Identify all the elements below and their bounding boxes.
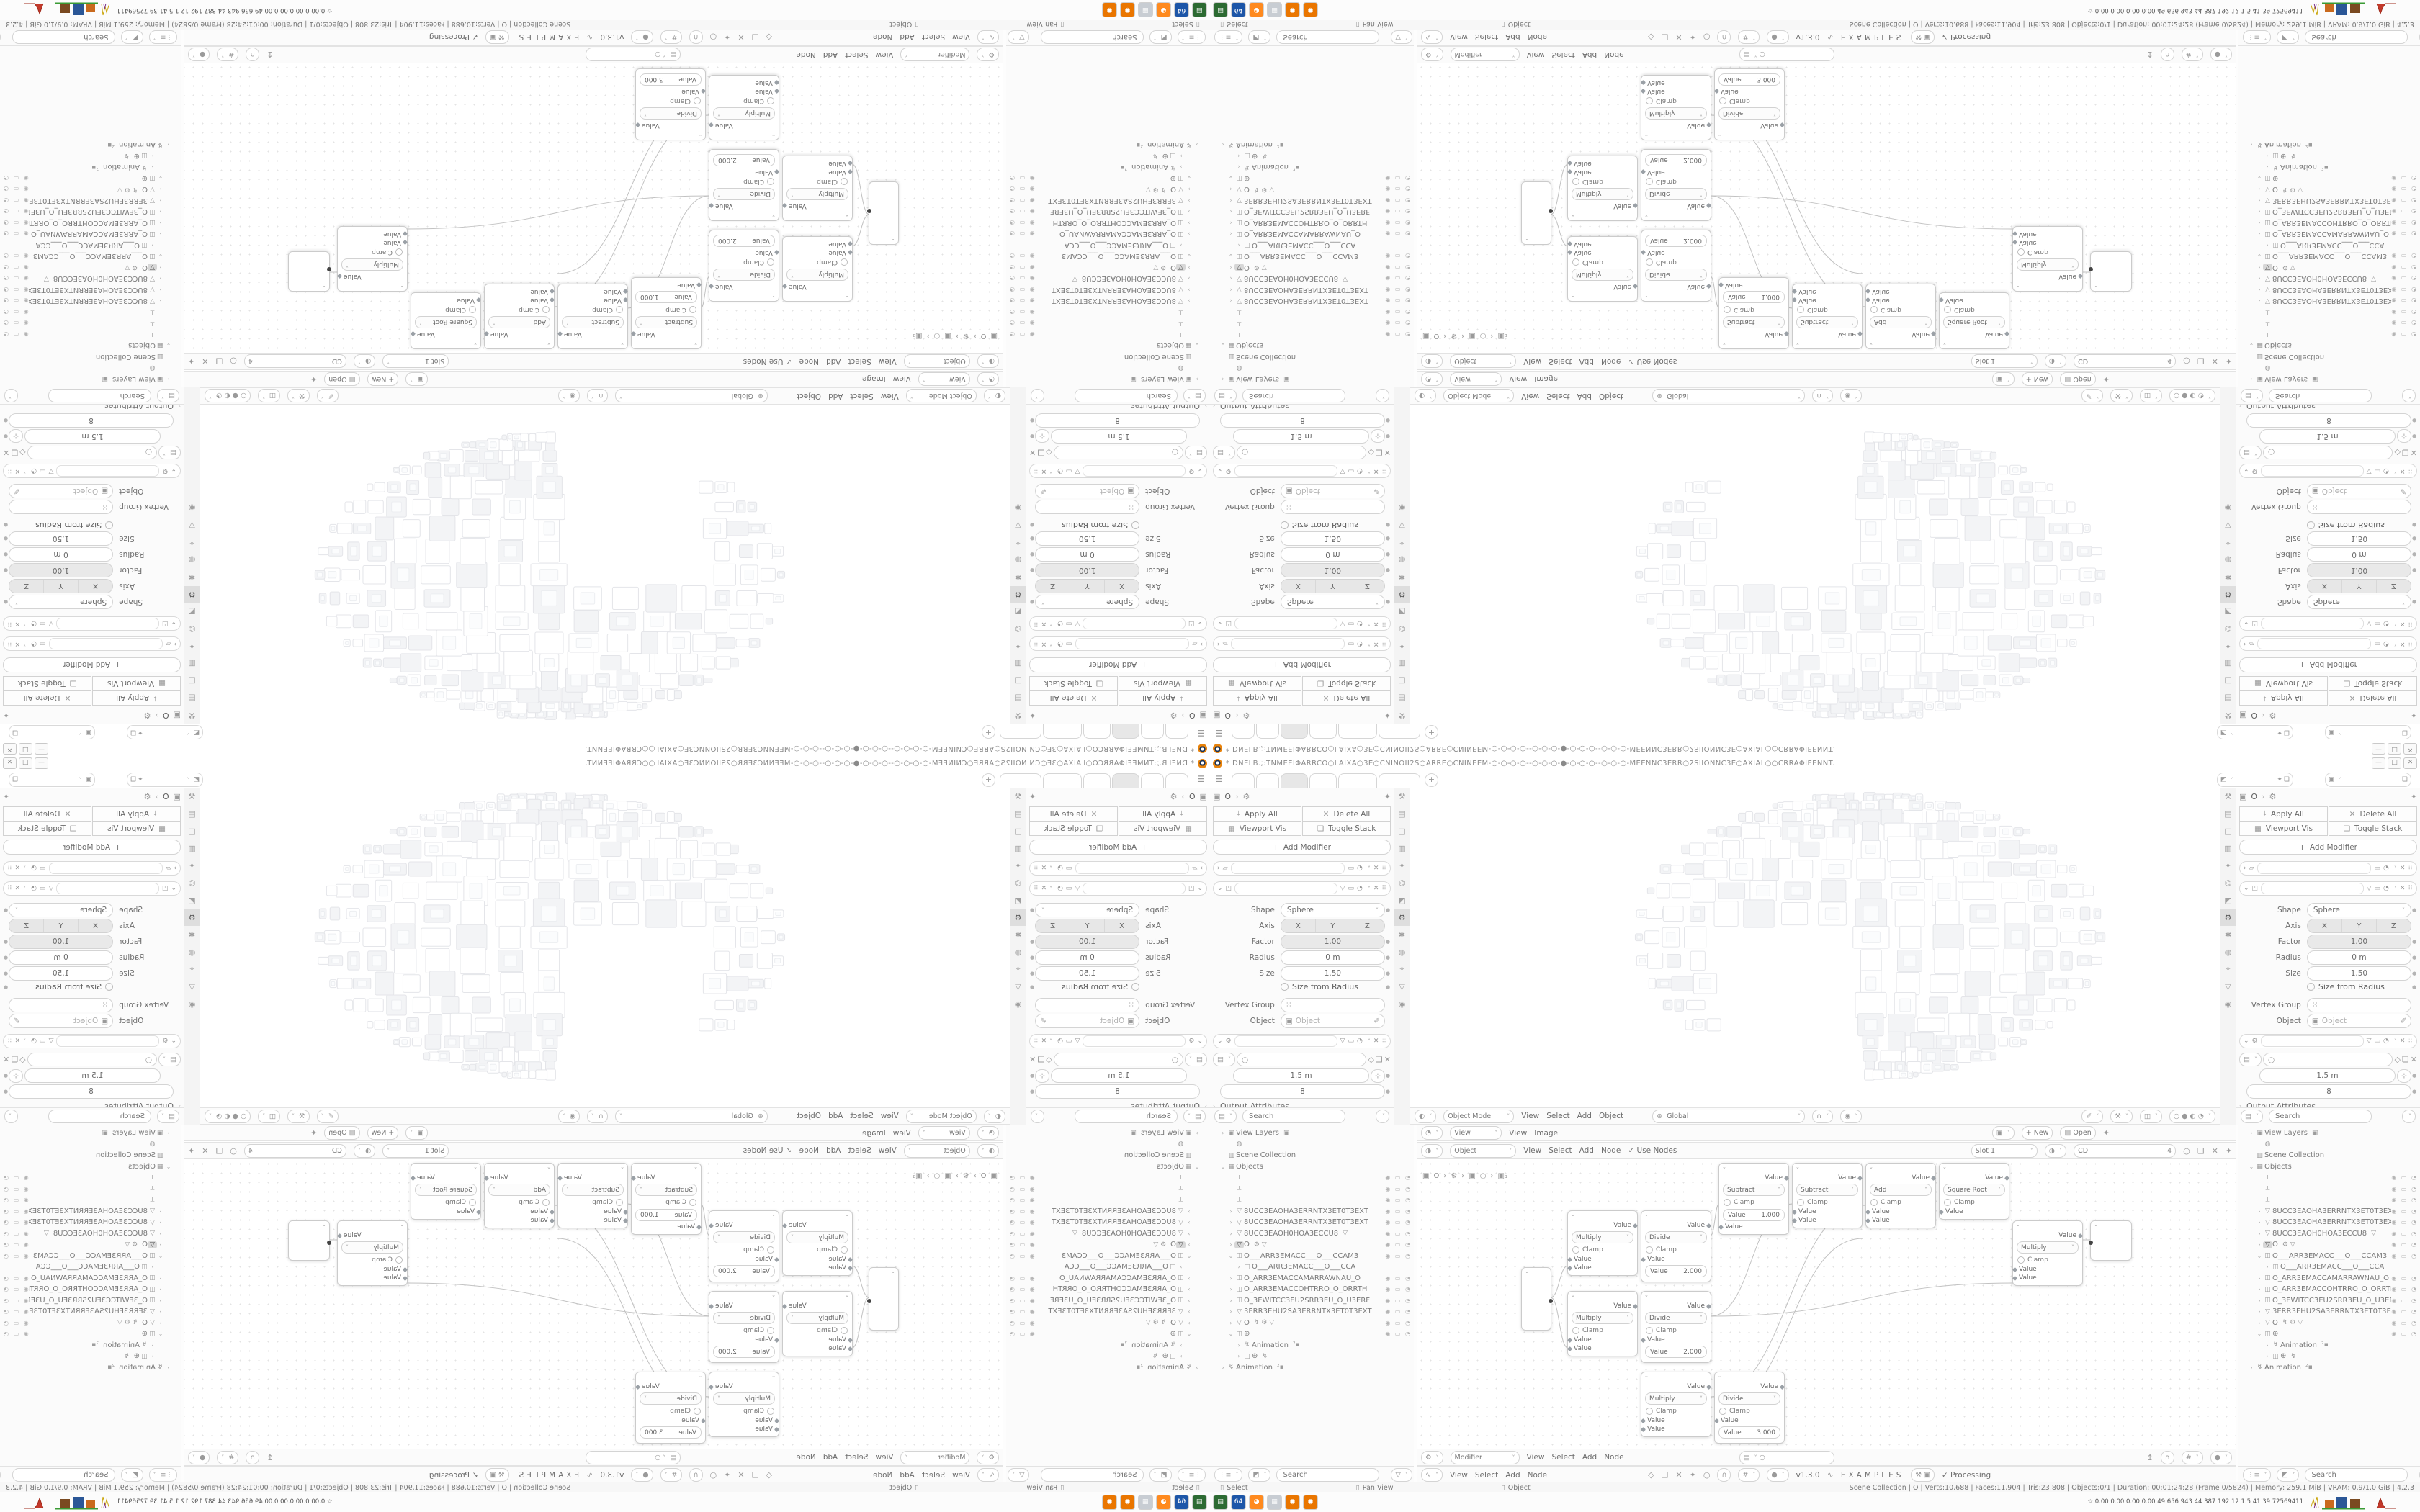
viewport-3d[interactable] — [1410, 788, 2220, 1125]
properties-tab-icon-1[interactable]: ▤ — [1394, 690, 1410, 707]
operation-select[interactable]: Square Root˅ — [415, 1184, 477, 1196]
filter-id-button[interactable]: ◩˅ — [121, 30, 143, 44]
pin-icon[interactable]: ✦ — [2411, 711, 2417, 721]
options-dropdown[interactable]: ˅ — [4, 389, 18, 402]
viewport-vis-button[interactable]: ▦Viewport Vis — [2239, 821, 2328, 836]
operation-select[interactable]: Divide˅ — [713, 188, 775, 200]
visibility-toggles[interactable]: ◉ ▭ ◔ — [1008, 320, 1035, 326]
outliner-row[interactable]: ›▽8UCC3EAOH0HOA3ECCU8▽◉ ▭ ◔ — [2240, 273, 2420, 284]
image-browse-button[interactable]: ▣˅ — [1992, 372, 2015, 386]
outliner-row[interactable]: ›◫O___ARR3EMACC___O___CCA — [0, 1261, 180, 1273]
workspace-tab-3[interactable] — [1112, 724, 1139, 739]
menu-add[interactable]: Add — [900, 1471, 914, 1480]
properties-tab-icon-9[interactable]: ◍ — [1394, 943, 1410, 960]
menu-view[interactable]: View — [881, 392, 899, 400]
outliner-row[interactable]: ⟂◉ ▭ ◔ — [1211, 329, 1414, 341]
close-button[interactable]: ✕ — [3, 743, 17, 755]
clamp-checkbox[interactable]: Clamp — [636, 96, 705, 106]
overlays-dropdown[interactable]: ●˅ — [2210, 1451, 2232, 1464]
grid-snap-select[interactable]: #˅ — [2182, 1451, 2203, 1464]
radius-field[interactable]: 0 m — [1035, 950, 1139, 965]
properties-tab-icon-12[interactable]: ◉ — [1010, 995, 1026, 1012]
view-layer-selector[interactable]: ▣˅ ❏ — [2325, 725, 2411, 739]
operation-select[interactable]: Subtract˅ — [562, 1184, 624, 1196]
gn-input-size-field[interactable]: 1.5 m — [24, 429, 161, 444]
snap-toggle[interactable]: ∩ — [689, 1468, 703, 1482]
workspace-tab-5[interactable] — [1338, 724, 1377, 739]
node-math-multiply[interactable]: ⌄ValueMultiply˅ClampValueValue — [1567, 156, 1638, 221]
editor-type-button[interactable]: ▤˅ — [2241, 1110, 2263, 1123]
minimize-button[interactable]: — — [35, 743, 48, 755]
workspace-tab-1[interactable] — [1232, 773, 1255, 788]
node-canvas[interactable]: ▣O› ⚙›▣○›▣₃ ⌄⌄ValueMultiply˅ClampValueVa… — [1417, 1159, 2236, 1449]
menu-select[interactable]: Select — [922, 33, 945, 42]
visibility-toggles[interactable]: ◉ ▭ ◔ — [2391, 1275, 2418, 1282]
properties-tab-icon-11[interactable]: ▽ — [2220, 517, 2236, 534]
factor-slider[interactable]: 1.00 — [1035, 563, 1139, 577]
outliner-row[interactable]: ›▽8UCC3EAOHA3ERRNTX3ET0T3EXT◉ ▭ ◔ — [0, 1206, 180, 1218]
text-editor-icon[interactable]: 64 — [1231, 3, 1246, 18]
outliner-row[interactable]: ›▽8UCC3EAOH0HOA3ECCU8▽◉ ▭ ◔ — [0, 273, 180, 284]
new-image-button[interactable]: + New — [367, 372, 399, 386]
outliner-row[interactable]: ⟂◉ ▭ ◔ — [1006, 307, 1209, 318]
menu-view[interactable]: View — [893, 375, 911, 384]
visibility-toggles[interactable]: ◉ ▭ ◔ — [2, 230, 29, 237]
clamp-checkbox[interactable]: Clamp — [2013, 1255, 2082, 1265]
properties-tab-icon-4[interactable]: ✦ — [2220, 638, 2236, 655]
properties-tab-icon-4[interactable]: ✦ — [2220, 857, 2236, 874]
visibility-toggles[interactable]: ◉ ▭ ◔ — [2391, 186, 2418, 192]
radius-field[interactable]: 0 m — [9, 950, 113, 965]
voxel-sphere-object[interactable] — [302, 430, 799, 721]
visibility-toggles[interactable]: ◉ ▭ ◔ — [2391, 1186, 2418, 1192]
node-math-divide[interactable]: ⌄ValueDivide˅ClampValueValue3.000 — [1714, 68, 1785, 140]
gn-input-extra-button[interactable]: ⊹ — [9, 1069, 23, 1083]
visibility-toggles[interactable]: ◉ ▭ ◔ — [1385, 309, 1412, 315]
outliner-row[interactable]: ›▽O↯ ⚙ ▽◉ ▭ ◔ — [0, 184, 180, 195]
node-math-multiply[interactable]: ⌄ValueMultiply˅ClampValueValue — [337, 1220, 408, 1286]
workspace-tab-6[interactable] — [1000, 773, 1041, 788]
search-input[interactable] — [1276, 30, 1379, 44]
visibility-toggles[interactable]: ◉ ▭ ◔ — [1008, 1230, 1035, 1237]
filter-id-button[interactable]: ◩˅ — [1248, 1468, 1270, 1482]
node-math-divide[interactable]: ⌄ValueDivide˅ClampValueValue2.000 — [1641, 149, 1711, 221]
pin-icon[interactable]: ✦ — [3, 711, 9, 721]
clamp-checkbox[interactable]: Clamp — [338, 1255, 407, 1265]
axis-y-button[interactable]: Y — [43, 919, 78, 932]
close-icon[interactable]: ✕ — [1675, 1470, 1682, 1480]
visibility-toggles[interactable]: ◉ ▭ ◔ — [1385, 1230, 1412, 1237]
clamp-checkbox[interactable]: Clamp — [783, 1245, 852, 1255]
outliner-row[interactable]: ▥Scene Collection — [0, 1150, 180, 1161]
image-browse-button[interactable]: ▣˅ — [405, 1126, 428, 1140]
node-group-name-field[interactable]: ○ — [1054, 446, 1183, 459]
modifier-header-cast[interactable]: ⌄◳ ▽▭◔˅✕⠿ — [3, 881, 181, 896]
outliner-row[interactable]: ›▽8UCC3EAOHA3ERRNTX3ET0T3EXT◉ ▭ ◔ — [1006, 1206, 1209, 1218]
menu-add[interactable]: Add — [826, 1146, 841, 1155]
copy-icon[interactable]: ❏ — [130, 776, 136, 783]
outliner-row[interactable]: ›▽3ERR3EHU2SA3ERRNTX3ET0T3EXT◉ ▭ ◔ — [0, 195, 180, 207]
shape-select[interactable]: Sphere˅ — [1281, 595, 1385, 609]
visibility-toggles[interactable]: ◉ ▭ ◔ — [2, 309, 29, 315]
properties-tab-icon-10[interactable]: ⌖ — [1010, 534, 1026, 552]
outliner-row[interactable]: ⌄◫O___ARR3EMACC___O___CCAM3◉ ▭ ◔ — [1006, 1251, 1209, 1262]
outliner-row[interactable]: ›◫O___ARR3EMACC___O___CCA — [2240, 240, 2420, 251]
clamp-checkbox[interactable]: Clamp — [1715, 96, 1784, 106]
axis-x-button[interactable]: X — [2308, 919, 2342, 932]
node-group-field[interactable]: ▤˅○ — [586, 48, 681, 62]
open-image-button[interactable]: ▤ Open — [324, 372, 359, 386]
properties-tab-icon-3[interactable]: ▥ — [1010, 655, 1026, 672]
outliner-row[interactable]: ⌄◫⊕◉ ▭ ◔ — [1006, 173, 1209, 184]
workspace-tab-3[interactable] — [1281, 773, 1308, 788]
visibility-toggles[interactable]: ◉ ▭ ◔ — [1385, 1241, 1412, 1248]
visibility-toggles[interactable]: ◉ ▭ ◔ — [2391, 1320, 2418, 1326]
close-icon[interactable]: ✕ — [3, 448, 9, 457]
menu-image[interactable]: Image — [1534, 375, 1558, 384]
text-editor-icon[interactable]: 64 — [1231, 1495, 1246, 1510]
visibility-toggles[interactable]: ◉ ▭ ◔ — [2391, 275, 2418, 282]
pin-icon[interactable]: ✦ — [1029, 792, 1036, 801]
apply-all-button[interactable]: ⤓Apply All — [92, 806, 181, 822]
visibility-toggles[interactable]: ◉ ▭ ◔ — [2, 1253, 29, 1259]
outliner-row[interactable]: ›▽8UCC3EAOH0HOA3ECCU8▽◉ ▭ ◔ — [1211, 273, 1414, 284]
operation-select[interactable]: Multiply˅ — [2017, 1241, 2079, 1254]
visibility-toggles[interactable]: ◉ ▭ ◔ — [1008, 309, 1035, 315]
outliner-row[interactable]: ›◫O_ARR3EMACCAMARRAWNAU_O◉ ▭ ◔ — [1211, 1273, 1414, 1284]
copy-icon[interactable]: ❏ — [12, 729, 18, 736]
gn-input-size-field[interactable]: 1.5 m — [1051, 1068, 1187, 1083]
add-modifier-button[interactable]: +Add Modifier — [1029, 840, 1207, 855]
eyedropper-icon[interactable]: ✐ — [1040, 1017, 1047, 1025]
viewport-vis-button[interactable]: ▦Viewport Vis — [92, 821, 181, 836]
menu-select[interactable]: Select — [1475, 33, 1498, 42]
node-math-subtract[interactable]: ⌄ValueSubtract˅ClampValue1.000Value — [631, 1163, 702, 1235]
open-image-button[interactable]: ▤ Open — [2060, 372, 2095, 386]
visibility-toggles[interactable]: ◉ ▭ ◔ — [1385, 1331, 1412, 1337]
vertex-group-field[interactable]: ⁙ — [1281, 500, 1385, 514]
material-slot-select[interactable]: Slot 1˅ — [1971, 1144, 2038, 1158]
properties-tab-icon-5[interactable]: ⌬ — [1010, 874, 1026, 891]
modifier-header-cast[interactable]: ⌄◳ ▽▭◔˅✕⠿ — [2239, 616, 2417, 631]
visibility-toggles[interactable]: ◉ ▭ ◔ — [1385, 264, 1412, 271]
search-input[interactable] — [1276, 1468, 1379, 1482]
menu-node[interactable]: Node — [799, 1146, 819, 1155]
outliner-row[interactable]: ›◫O_ARR3EMACCOHTRRO_O_ORRTH◉ ▭ ◔ — [0, 217, 180, 229]
properties-tab-icon-12[interactable]: ◉ — [1394, 995, 1410, 1012]
blender-icon[interactable]: ◉ — [1285, 3, 1300, 18]
maximize-button[interactable]: □ — [2388, 757, 2401, 769]
grid-snap-select[interactable]: #˅ — [217, 48, 238, 62]
outliner-row[interactable]: ›◫O___ARR3EMACC___O___CCA — [1006, 1261, 1209, 1273]
node-group-name-field[interactable]: ○ — [27, 446, 157, 459]
object-field[interactable]: ▣Object ✐ — [1281, 1014, 1385, 1028]
grid-snap-select[interactable]: #˅ — [217, 1451, 238, 1464]
search-input[interactable] — [12, 1468, 115, 1482]
outliner-row[interactable]: ⟂◉ ▭ ◔ — [0, 1172, 180, 1184]
editor-type-button[interactable]: ◐˅ — [1415, 1110, 1436, 1123]
outliner-row[interactable]: ›↯Animation²▪ — [1211, 1362, 1414, 1374]
calculator-icon[interactable]: ▦ — [1267, 1495, 1282, 1510]
menu-select[interactable]: Select — [850, 392, 873, 400]
node-math-subtract[interactable]: ⌄ValueSubtract˅ClampValueValue — [1792, 1163, 1863, 1228]
modifier-header-geometry-nodes[interactable]: ⌄⚙ ▽▭◔˅✕⠿ — [1213, 1034, 1391, 1048]
visibility-toggles[interactable]: ◉ ▭ ◔ — [1385, 287, 1412, 293]
outliner-row[interactable]: ⌄◫⊕◉ ▭ ◔ — [1211, 1328, 1414, 1340]
mode-select[interactable]: Object Mode˅ — [906, 390, 977, 403]
maximize-button[interactable]: □ — [19, 757, 32, 769]
apply-all-button[interactable]: ⤓Apply All — [2239, 806, 2328, 822]
properties-tab-icon-1[interactable]: ▤ — [2220, 690, 2236, 707]
clamp-checkbox[interactable]: Clamp — [632, 305, 701, 315]
clamp-checkbox[interactable]: Clamp — [709, 176, 779, 186]
copy-icon[interactable]: ❏ — [1376, 448, 1383, 457]
menu-view[interactable]: View — [881, 1112, 899, 1120]
toggle-stack-button[interactable]: ❏Toggle Stack — [1302, 676, 1391, 691]
transform-orientation-select[interactable]: ⊕ Global˅ — [1652, 390, 1805, 403]
outliner-row[interactable]: ›◫O___ARR3EMACC___O___CCA — [1211, 1261, 1414, 1273]
outliner-row[interactable]: ›▽3ERR3EHU2SA3ERRNTX3ET0T3EXT◉ ▭ ◔ — [1006, 1306, 1209, 1318]
clamp-checkbox[interactable]: Clamp — [1866, 305, 1935, 315]
visibility-toggles[interactable]: ◉ ▭ ◔ — [2, 1197, 29, 1203]
outliner-row[interactable]: ›▽8UCC3EAOHA3ERRNTX3ET0T3EXT◉ ▭ ◔ — [1211, 1206, 1414, 1218]
visibility-toggles[interactable]: ◉ ▭ ◔ — [2391, 1286, 2418, 1292]
modifier-header-geometry-nodes[interactable]: ⌄⚙ ▽▭◔˅✕⠿ — [1029, 464, 1207, 478]
value-field[interactable]: Value3.000 — [640, 73, 702, 86]
visibility-toggles[interactable]: ◉ ▭ ◔ — [1385, 1174, 1412, 1181]
new-image-button[interactable]: + New — [2022, 1126, 2053, 1140]
properties-tab-icon-0[interactable]: ⚒ — [2220, 788, 2236, 805]
overlays-dropdown[interactable]: ●˅ — [188, 48, 210, 62]
outliner-row[interactable]: ◍ — [1211, 362, 1414, 374]
clamp-checkbox[interactable]: Clamp — [1641, 1245, 1711, 1255]
blender-icon[interactable]: ◉ — [1120, 1495, 1135, 1510]
visibility-toggles[interactable]: ◉ ▭ ◔ — [2, 1230, 29, 1237]
add-modifier-button[interactable]: +Add Modifier — [1029, 657, 1207, 672]
toggle-stack-button[interactable]: ❏Toggle Stack — [2329, 821, 2417, 836]
delete-all-button[interactable]: ✕Delete All — [1029, 806, 1118, 822]
calculator-icon[interactable]: ▦ — [1267, 3, 1282, 18]
material-slot-select[interactable]: Slot 1˅ — [382, 1144, 449, 1158]
gn-input-size-field[interactable]: 1.5 m — [1051, 429, 1187, 444]
outliner-row[interactable]: ▥Scene Collection — [1006, 1150, 1209, 1161]
search-input[interactable] — [1041, 30, 1144, 44]
clamp-checkbox[interactable]: Clamp — [1568, 1326, 1637, 1336]
axis-z-button[interactable]: Z — [9, 919, 43, 932]
modifier-header-bevel[interactable]: ›▱ ▭◔˅✕⠿ — [1029, 861, 1207, 876]
search-input[interactable] — [1242, 1110, 1345, 1123]
modifier-name-field[interactable] — [2261, 465, 2364, 477]
properties-tab-icon-7[interactable]: ⚙ — [184, 586, 200, 603]
properties-tab-icon-7[interactable]: ⚙ — [1010, 909, 1026, 926]
options-dropdown[interactable]: ˅ — [1376, 1110, 1389, 1123]
modifier-header-cast[interactable]: ⌄◳ ▽▭◔˅✕⠿ — [1029, 881, 1207, 896]
outliner-row[interactable]: ⟂◉ ▭ ◔ — [0, 1194, 180, 1206]
apply-all-button[interactable]: ⤓Apply All — [1213, 806, 1301, 822]
outliner-row[interactable]: ›▽8UCC3EAOHA3ERRNTX3ET0T3EXT◉ ▭ ◔ — [0, 1217, 180, 1228]
grid-snap-select[interactable]: #˅ — [660, 1468, 682, 1482]
outliner-row[interactable]: ⟂◉ ▭ ◔ — [1211, 318, 1414, 329]
proportional-edit-toggle[interactable]: ◉˅ — [1840, 390, 1862, 403]
gn-input-count-field[interactable]: 8 — [1220, 413, 1385, 428]
node-group-browse[interactable]: ▤˅ — [158, 446, 181, 459]
properties-tab-icon-9[interactable]: ◍ — [184, 943, 200, 960]
menu-view[interactable]: View — [879, 1146, 897, 1155]
outliner-row[interactable]: ⟂◉ ▭ ◔ — [2240, 1184, 2420, 1195]
outliner-row[interactable]: ›↯Animation²▪ — [0, 1340, 180, 1351]
properties-tab-icon-2[interactable]: ◫ — [184, 822, 200, 840]
properties-tab-icon-8[interactable]: ✱ — [1394, 569, 1410, 586]
modifier-header-cast[interactable]: ⌄◳ ▽▭◔˅✕⠿ — [1213, 616, 1391, 631]
outliner-row[interactable]: ⟂◉ ▭ ◔ — [1006, 1172, 1209, 1184]
add-modifier-button[interactable]: +Add Modifier — [3, 657, 181, 672]
gn-input-count-field[interactable]: 8 — [9, 413, 174, 428]
menu-view[interactable]: View — [1527, 50, 1545, 59]
node-math-multiply[interactable]: ⌄ValueMultiply˅ClampValueValue — [782, 156, 853, 221]
search-input[interactable] — [1075, 1110, 1178, 1123]
outliner-row[interactable]: ⟂◉ ▭ ◔ — [1211, 307, 1414, 318]
shading-mode-cluster[interactable]: ○●◐◔˅ — [2169, 1110, 2215, 1123]
visibility-toggles[interactable]: ◉ ▭ ◔ — [2, 1208, 29, 1215]
blender-icon[interactable]: ◉ — [1120, 3, 1135, 18]
visibility-toggles[interactable]: ◉ ▭ ◔ — [2, 297, 29, 304]
outliner-row[interactable]: ›◫⊕↯ — [1211, 1351, 1414, 1362]
menu-node[interactable]: Node — [796, 50, 815, 59]
outliner-row[interactable]: ›▽8UCC3EAOHA3ERRNTX3ET0T3EXT◉ ▭ ◔ — [0, 295, 180, 307]
outliner-row[interactable]: ›▽8UCC3EAOH0HOA3ECCU8▽◉ ▭ ◔ — [2240, 1228, 2420, 1240]
node-math-multiply[interactable]: ⌄ValueMultiply˅ClampValueValue — [1641, 1372, 1711, 1437]
clamp-checkbox[interactable]: Clamp — [636, 1406, 705, 1416]
operation-select[interactable]: Divide˅ — [1718, 107, 1780, 120]
search-input[interactable] — [1242, 389, 1345, 402]
outliner-row[interactable]: ⌄◫O___ARR3EMACC___O___CCAM3◉ ▭ ◔ — [1006, 251, 1209, 262]
operation-select[interactable]: Subtract˅ — [562, 316, 624, 328]
properties-tab-icon-10[interactable]: ⌖ — [184, 534, 200, 552]
menu-view[interactable]: View — [876, 50, 894, 59]
workspace-tab-4[interactable] — [1083, 724, 1111, 739]
pin-icon[interactable]: ✦ — [188, 1146, 194, 1156]
options-dropdown[interactable]: ˅ — [1031, 389, 1044, 402]
search-input[interactable] — [1041, 1468, 1144, 1482]
visibility-toggles[interactable]: ◉ ▭ ◔ — [1385, 1197, 1412, 1203]
operation-select[interactable]: Multiply˅ — [786, 269, 848, 281]
outliner-row[interactable]: ›↯Animation²▪ — [2240, 1362, 2420, 1374]
properties-tab-icon-5[interactable]: ⌬ — [1394, 621, 1410, 638]
properties-tab-icon-0[interactable]: ⚒ — [1010, 788, 1026, 805]
vertex-group-field[interactable]: ⁙ — [1035, 998, 1139, 1012]
visibility-toggles[interactable]: ◉ ▭ ◔ — [1385, 175, 1412, 181]
view-layer-selector[interactable]: ▣˅ ❏ — [9, 773, 95, 787]
shading-mode-cluster[interactable]: ○●◐◔˅ — [205, 1110, 251, 1123]
modifier-name-field[interactable] — [2261, 883, 2364, 894]
factor-slider[interactable]: 1.00 — [1035, 935, 1139, 949]
material-browse-button[interactable]: ◑˅ — [2045, 355, 2066, 369]
visibility-toggles[interactable]: ◉ ▭ ◔ — [1385, 297, 1412, 304]
options-dropdown[interactable]: ˅ — [2402, 389, 2416, 402]
vertex-group-field[interactable]: ⁙ — [2307, 998, 2411, 1012]
modifier-name-field[interactable] — [1234, 883, 1337, 894]
operation-select[interactable]: Add˅ — [1870, 1184, 1932, 1196]
factor-slider[interactable]: 1.00 — [9, 563, 113, 577]
visibility-toggles[interactable]: ◉ ▭ ◔ — [1008, 1208, 1035, 1215]
visibility-toggles[interactable]: ◉ ▭ ◔ — [1385, 208, 1412, 215]
workspace-tab-5[interactable] — [1338, 773, 1377, 788]
node-math-multiply[interactable]: ⌄ValueMultiply˅ClampValueValue — [782, 1210, 853, 1276]
workspace-tab-1[interactable] — [1165, 724, 1188, 739]
node-group-browse[interactable]: ▤˅ — [1185, 446, 1207, 459]
eyedropper-icon[interactable]: ✐ — [2400, 1017, 2406, 1025]
view-mode-select[interactable]: View˅ — [918, 372, 970, 386]
properties-tab-icon-1[interactable]: ▤ — [1010, 690, 1026, 707]
use-nodes-checkbox[interactable]: ✓ Use Nodes — [1628, 1146, 1677, 1155]
outliner-row[interactable]: ›◫⊕↯ — [2240, 1351, 2420, 1362]
overlay-icon[interactable]: ↥ — [266, 50, 273, 60]
files-app-icon[interactable]: ▤ — [1213, 3, 1228, 18]
node-math-multiply[interactable]: ⌄ValueMultiply˅ClampValueValue — [782, 1291, 853, 1356]
outliner-row[interactable]: ›◫⊕↯ — [0, 1351, 180, 1362]
minimize-button[interactable]: — — [2372, 757, 2385, 769]
properties-tab-icon-2[interactable]: ◫ — [1010, 672, 1026, 690]
node-group-name-field[interactable]: ○ — [1237, 446, 1366, 459]
calculator-icon[interactable]: ▦ — [1138, 1495, 1153, 1510]
voxel-sphere-object[interactable] — [1621, 430, 2117, 721]
size-from-radius-checkbox[interactable]: Size from Radius — [1281, 521, 1385, 530]
node-group-name-field[interactable]: ○ — [27, 1053, 157, 1066]
editor-type-button[interactable]: ◔˅ — [1421, 372, 1443, 386]
outliner-row[interactable]: ⌄◫⊕◉ ▭ ◔ — [0, 173, 180, 184]
outliner-row[interactable]: ›▣View Layers▣ — [2240, 1128, 2420, 1139]
outliner-row[interactable]: ⌄▦Objects — [0, 340, 180, 351]
outliner-row[interactable]: ⟂◉ ▭ ◔ — [1211, 1172, 1414, 1184]
xray-toggle[interactable]: ◫˅ — [258, 1110, 280, 1123]
value-field[interactable]: Value2.000 — [1645, 235, 1707, 247]
gn-input-size-field[interactable]: 1.5 m — [1233, 1068, 1369, 1083]
object-field[interactable]: ▣Object ✐ — [1035, 1014, 1139, 1028]
visibility-toggles[interactable]: ◉ ▭ ◔ — [1008, 1197, 1035, 1203]
properties-tab-icon-2[interactable]: ◫ — [1394, 672, 1410, 690]
gn-input-extra-button[interactable]: ⊹ — [2397, 430, 2411, 444]
outliner-row[interactable]: ›▽O⚙ ▽◉ ▭ ◔ — [2240, 1239, 2420, 1251]
menu-icon[interactable]: ☰ — [1197, 728, 1205, 738]
gn-input-count-field[interactable]: 8 — [2246, 1084, 2411, 1099]
snap-toggle[interactable]: ∩˅ — [587, 1110, 608, 1123]
visibility-toggles[interactable]: ◉ ▭ ◔ — [2, 1297, 29, 1304]
pin-icon[interactable]: ✦ — [138, 729, 143, 736]
addon-examples-label[interactable]: EXAMPLES — [1841, 1471, 1904, 1480]
properties-tab-icon-6[interactable]: ◩ — [184, 891, 200, 909]
modifier-name-field[interactable] — [1083, 883, 1186, 894]
properties-tab-icon-0[interactable]: ⚒ — [2220, 707, 2236, 724]
gn-input-count-field[interactable]: 8 — [1035, 413, 1200, 428]
visibility-toggles[interactable]: ◉ ▭ ◔ — [1008, 1174, 1035, 1181]
visibility-toggles[interactable]: ◉ ▭ ◔ — [1008, 186, 1035, 192]
node-group-browse[interactable]: ▤˅ — [158, 1053, 181, 1066]
node-math-divide[interactable]: ⌄ValueDivide˅ClampValueValue2.000 — [1641, 1210, 1711, 1282]
properties-tab-icon-7[interactable]: ⚙ — [1394, 909, 1410, 926]
visibility-toggles[interactable]: ◉ ▭ ◔ — [1385, 253, 1412, 259]
visibility-toggles[interactable]: ◉ ▭ ◔ — [2, 1241, 29, 1248]
outliner-row[interactable]: ⟂◉ ▭ ◔ — [1006, 1194, 1209, 1206]
filter-dropdown[interactable]: ▽˅ — [1391, 1468, 1412, 1482]
pin-icon[interactable]: ✦ — [2411, 792, 2417, 801]
editor-type-button[interactable]: ◐˅ — [1415, 390, 1436, 403]
close-icon[interactable]: ✕ — [1029, 1055, 1036, 1064]
operation-select[interactable]: Divide˅ — [640, 1392, 702, 1405]
operation-select[interactable]: Divide˅ — [1645, 1231, 1707, 1243]
axis-y-button[interactable]: Y — [1070, 919, 1104, 932]
properties-tab-icon-12[interactable]: ◉ — [184, 500, 200, 517]
outliner-row[interactable]: ›↯Animation²▪ — [0, 139, 180, 150]
